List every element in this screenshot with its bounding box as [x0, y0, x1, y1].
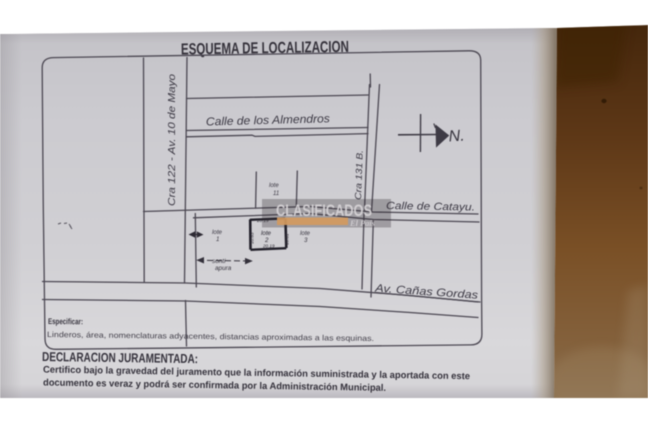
svg-text:lote: lote	[300, 230, 311, 237]
svg-text:sonti: sonti	[212, 258, 226, 265]
svg-text:3: 3	[304, 237, 308, 244]
svg-text:DECLARACION JURAMENTADA:: DECLARACION JURAMENTADA:	[42, 349, 198, 366]
svg-text:20.19: 20.19	[262, 244, 275, 249]
svg-text:10.63: 10.63	[249, 232, 254, 244]
svg-text:apura: apura	[215, 265, 232, 272]
svg-text:lote: lote	[212, 229, 223, 236]
svg-text:CLASIFICADOS: CLASIFICADOS	[276, 202, 372, 220]
svg-text:lote: lote	[269, 183, 279, 189]
svg-text:lote: lote	[261, 230, 272, 237]
svg-text:Calle de Catayu.: Calle de Catayu.	[386, 200, 475, 214]
svg-text:2: 2	[264, 237, 269, 244]
svg-text:Cra 122 - Av. 10 de Mayo: Cra 122 - Av. 10 de Mayo	[167, 73, 178, 206]
svg-text:N.: N.	[448, 127, 465, 145]
svg-text:1: 1	[216, 236, 219, 243]
svg-text:10.61: 10.61	[285, 233, 290, 245]
svg-text:11: 11	[273, 191, 279, 197]
svg-text:Especificar:: Especificar:	[48, 317, 83, 326]
svg-text:El País: El País	[349, 219, 375, 228]
svg-text:Cra 131 B.: Cra 131 B.	[353, 150, 365, 200]
